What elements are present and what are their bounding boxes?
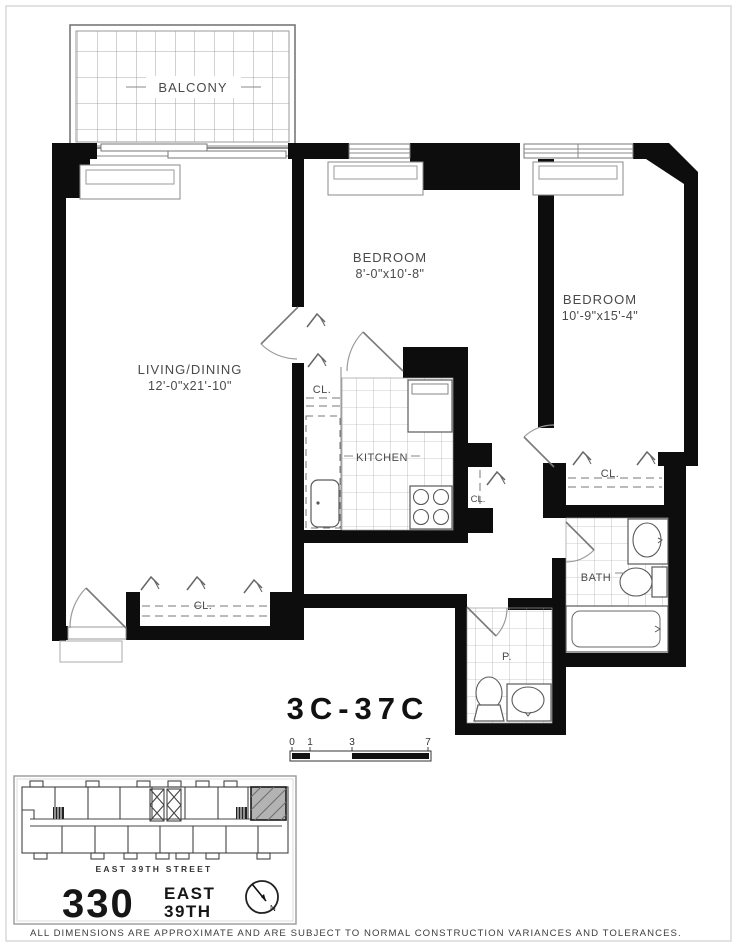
title-block: 3C-37C 0 1 3 7 — [287, 691, 432, 761]
bedroom2-door — [524, 425, 554, 467]
kitchen-sink — [311, 480, 339, 527]
bedroom1-window — [349, 144, 410, 158]
balcony-label: BALCONY — [158, 80, 227, 95]
scale-tick-3: 7 — [425, 737, 431, 748]
north-label: N — [270, 904, 276, 913]
disclaimer-text: ALL DIMENSIONS ARE APPROXIMATE AND ARE S… — [30, 928, 682, 939]
beveled-corner-wall — [633, 143, 698, 466]
floorplan-page: BALCONY — [0, 0, 737, 947]
unit-title: 3C-37C — [287, 691, 430, 726]
bath-vanity-sink — [628, 519, 668, 564]
bedroom2-label: BEDROOM — [563, 292, 637, 307]
balcony: BALCONY — [70, 25, 295, 148]
hall-closet-label: CL. — [471, 494, 486, 505]
bedroom2-window — [524, 144, 633, 158]
bathtub — [566, 606, 668, 652]
bedroom1-door — [261, 307, 298, 359]
bath-label: BATH — [581, 572, 612, 584]
tiled-floors — [341, 367, 668, 723]
key-plan: EAST 39TH STREET 330 EAST 39TH N — [14, 776, 296, 926]
bedroom1-closet-label: CL. — [313, 384, 332, 396]
bedroom1-label: BEDROOM — [353, 250, 427, 265]
street-label: EAST 39TH STREET — [96, 864, 213, 874]
refrigerator — [408, 380, 452, 432]
highlighted-unit — [251, 787, 286, 820]
bath-toilet — [620, 567, 667, 597]
logo-word2: 39TH — [164, 902, 212, 921]
scale-tick-0: 0 — [289, 737, 295, 748]
scale-bar: 0 1 3 7 — [289, 737, 431, 761]
living-closet-label: CL. — [194, 600, 213, 612]
radiators — [80, 162, 623, 199]
floorplan-drawing: BALCONY — [0, 0, 737, 947]
balcony-sliding-door — [97, 144, 288, 158]
stove — [410, 486, 452, 529]
scale-tick-1: 1 — [307, 737, 313, 748]
bedroom2-dims: 10'-9"x15'-4" — [562, 309, 638, 323]
bedroom2-closet-label: CL. — [601, 468, 620, 480]
bedroom1-dims: 8'-0"x10'-8" — [356, 267, 425, 281]
living-dims: 12'-0"x21'-10" — [148, 379, 232, 393]
logo-number: 330 — [62, 882, 135, 926]
powder-label: P. — [502, 651, 512, 663]
scale-tick-2: 3 — [349, 737, 355, 748]
logo-word1: EAST — [164, 884, 215, 903]
windows — [97, 144, 633, 158]
kitchen-label: KITCHEN — [356, 452, 408, 464]
powder-vanity-sink — [507, 684, 551, 721]
kitchen-door — [347, 332, 403, 371]
entry-door — [60, 588, 126, 662]
powder-toilet — [474, 677, 504, 721]
living-label: LIVING/DINING — [138, 362, 243, 377]
